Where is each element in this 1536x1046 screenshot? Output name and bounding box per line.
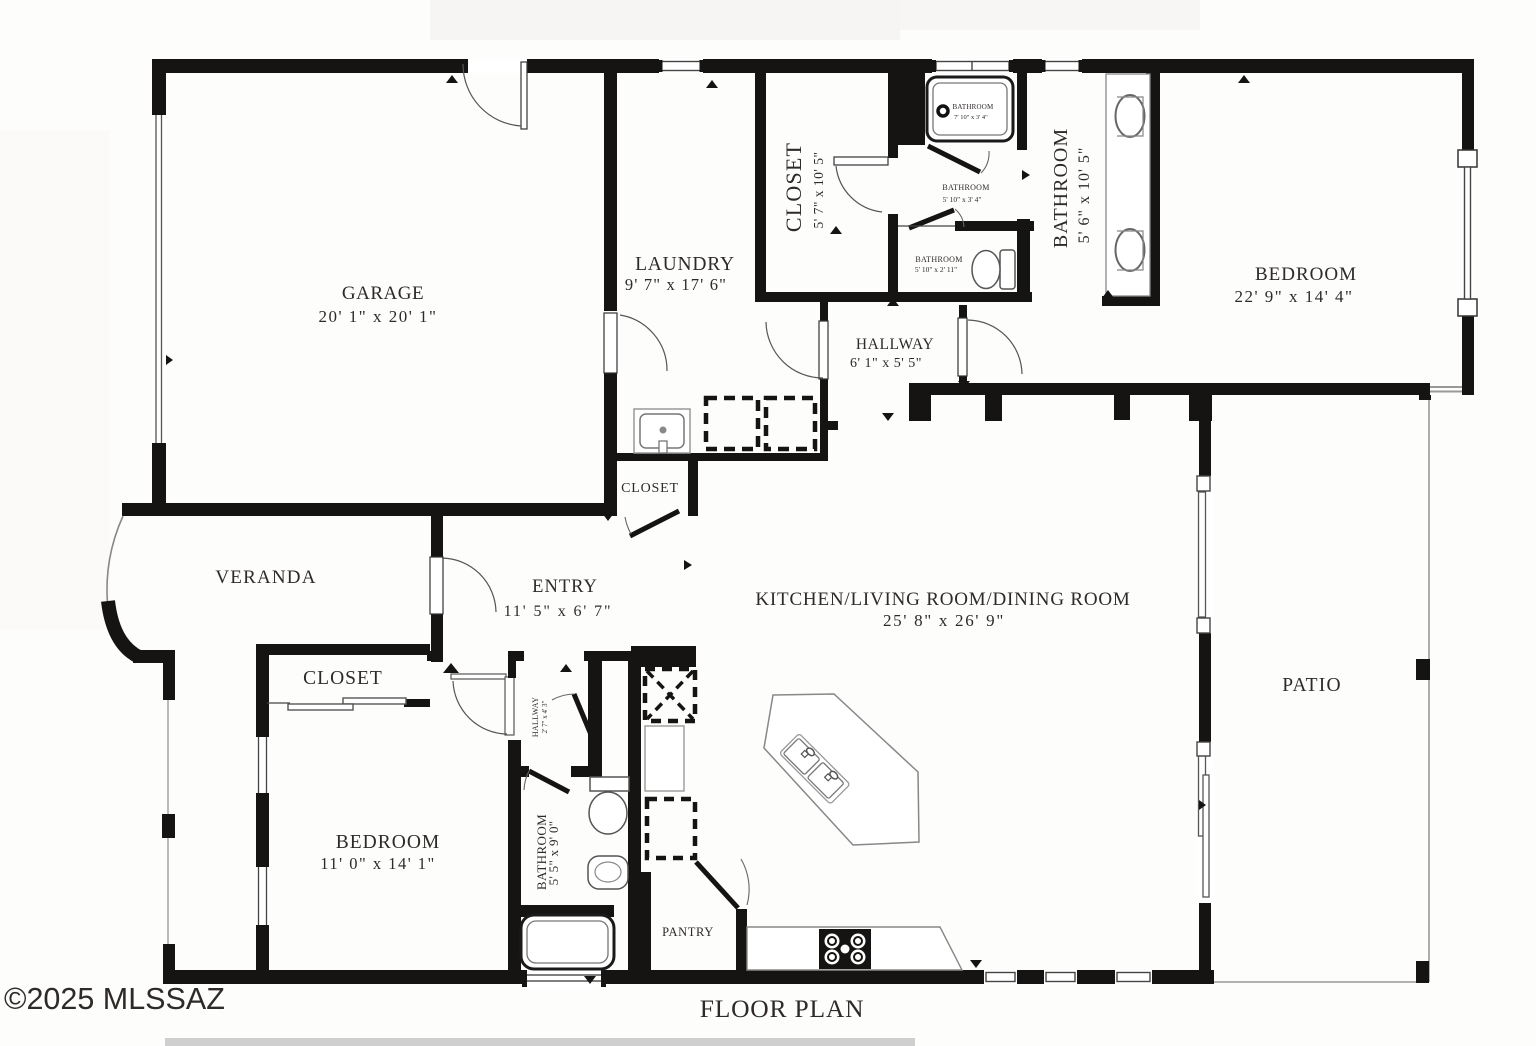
svg-text:BEDROOM: BEDROOM <box>1255 264 1357 285</box>
svg-text:©2025 MLSSAZ: ©2025 MLSSAZ <box>4 982 225 1016</box>
svg-text:PATIO: PATIO <box>1282 675 1341 696</box>
svg-text:BATHROOM: BATHROOM <box>1050 128 1072 248</box>
svg-text:ENTRY: ENTRY <box>532 577 598 597</box>
svg-text:PANTRY: PANTRY <box>662 925 714 939</box>
svg-text:5' 7" x 10' 5": 5' 7" x 10' 5" <box>811 152 826 229</box>
svg-text:5' 6" x 10' 5": 5' 6" x 10' 5" <box>1076 147 1093 244</box>
svg-text:GARAGE: GARAGE <box>342 283 424 304</box>
svg-text:HALLWAY: HALLWAY <box>856 336 934 353</box>
svg-text:5' 10" x 3' 4": 5' 10" x 3' 4" <box>943 195 982 204</box>
svg-text:25' 8" x 26' 9": 25' 8" x 26' 9" <box>883 611 1005 630</box>
svg-text:20' 1" x 20' 1": 20' 1" x 20' 1" <box>318 307 437 326</box>
svg-text:CLOSET: CLOSET <box>621 481 679 496</box>
svg-text:BATHROOM: BATHROOM <box>915 255 962 264</box>
svg-text:CLOSET: CLOSET <box>781 142 806 232</box>
svg-text:6' 1" x 5' 5": 6' 1" x 5' 5" <box>850 356 922 371</box>
svg-text:2' 7" x 4' 3": 2' 7" x 4' 3" <box>541 700 549 733</box>
svg-text:11' 5" x 6' 7": 11' 5" x 6' 7" <box>504 603 613 620</box>
svg-text:BATHROOM: BATHROOM <box>942 183 989 192</box>
svg-text:FLOOR PLAN: FLOOR PLAN <box>700 994 865 1023</box>
svg-text:5' 5" x 9' 0": 5' 5" x 9' 0" <box>546 821 561 886</box>
svg-text:11' 0" x 14' 1": 11' 0" x 14' 1" <box>320 854 436 873</box>
svg-text:LAUNDRY: LAUNDRY <box>635 254 735 275</box>
svg-text:HALLWAY: HALLWAY <box>531 697 540 737</box>
svg-text:KITCHEN/LIVING ROOM/DINING ROO: KITCHEN/LIVING ROOM/DINING ROOM <box>755 589 1130 610</box>
svg-text:BEDROOM: BEDROOM <box>336 832 441 853</box>
svg-text:BATHROOM: BATHROOM <box>953 103 994 111</box>
svg-text:VERANDA: VERANDA <box>215 567 316 588</box>
svg-text:CLOSET: CLOSET <box>303 668 383 689</box>
svg-text:5' 10" x 2' 11": 5' 10" x 2' 11" <box>915 265 957 274</box>
svg-text:9' 7" x 17' 6": 9' 7" x 17' 6" <box>625 275 727 294</box>
svg-text:7' 10" x 3' 4": 7' 10" x 3' 4" <box>954 114 988 121</box>
svg-text:22' 9" x 14' 4": 22' 9" x 14' 4" <box>1234 287 1353 306</box>
